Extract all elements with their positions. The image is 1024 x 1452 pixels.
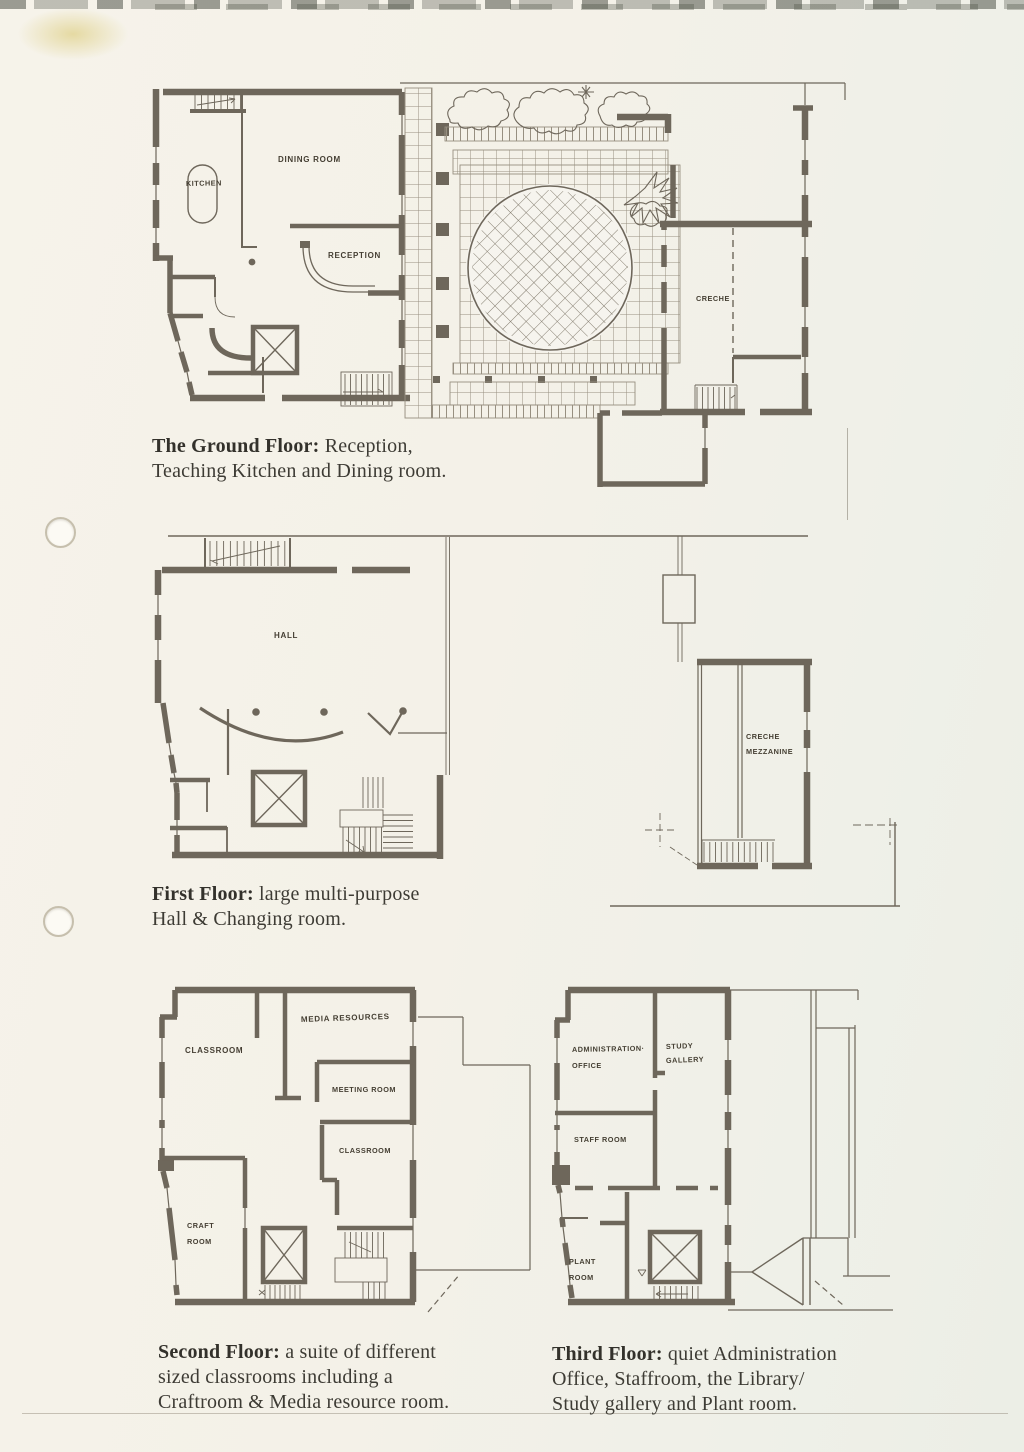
caption-text: Teaching Kitchen and Dining room.: [152, 459, 482, 484]
room-label-study-gallery: GALLERY: [666, 1055, 704, 1065]
interior-walls: [555, 990, 718, 1302]
hole-punch: [45, 517, 76, 548]
site-boundary: [400, 83, 845, 105]
tree-icon: [448, 85, 650, 134]
site-lines: [610, 536, 900, 906]
staircase-symbol: [695, 385, 737, 411]
second-floor-plan: CLASSROOM MEDIA RESOURCES MEETING ROOM C…: [155, 980, 540, 1320]
staircase-symbol: [259, 1232, 387, 1301]
room-label-plant-room: ROOM: [569, 1273, 594, 1282]
courtyard-garden: [405, 85, 813, 418]
elevator-symbol: [638, 1232, 700, 1282]
rear-extension: [600, 413, 705, 487]
room-label-creche: CRECHE: [696, 294, 730, 303]
scan-smudge: [18, 8, 128, 60]
staircase-symbol: [340, 777, 413, 855]
main-building: HALL: [158, 537, 450, 859]
room-label-hall: HALL: [274, 631, 298, 640]
room-label-media-resources: MEDIA RESOURCES: [301, 1012, 390, 1024]
room-label-administration-office: ADMINISTRATION·: [572, 1044, 645, 1054]
room-label-staff-room: STAFF ROOM: [574, 1135, 627, 1144]
caption-text: sized classrooms including a: [158, 1365, 498, 1390]
room-label-meeting-room: MEETING ROOM: [332, 1085, 396, 1094]
caption-lead: The Ground Floor:: [152, 435, 320, 457]
caption-text: Reception,: [320, 435, 413, 457]
room-label-kitchen: KITCHEN: [186, 178, 222, 188]
room-label-craft-room: CRAFT: [187, 1221, 214, 1230]
kitchen-worktable: [188, 165, 217, 223]
third-floor-plan: ADMINISTRATION· OFFICE STUDY GALLERY STA…: [548, 980, 913, 1320]
first-floor-plan: HALL CRECHE MEZZANINE: [150, 525, 910, 915]
room-label-reception: RECEPTION: [328, 251, 381, 260]
room-label-administration-office: OFFICE: [572, 1061, 602, 1070]
room-label-creche-mezzanine: CRECHE: [746, 732, 780, 741]
roof-outline: [728, 990, 893, 1310]
room-label-creche-mezzanine: MEZZANINE: [746, 747, 793, 756]
creche-building: CRECHE: [660, 224, 812, 415]
caption-text: quiet Administration: [663, 1343, 837, 1365]
building-shell: [552, 990, 858, 1302]
room-label-classroom: CLASSROOM: [339, 1146, 391, 1155]
creche-mezzanine: CRECHE MEZZANINE: [697, 662, 812, 869]
caption-lead: Second Floor:: [158, 1341, 280, 1363]
staircase-symbol: [702, 840, 775, 863]
paving-strip: [405, 88, 432, 418]
caption-text: Study gallery and Plant room.: [552, 1392, 892, 1417]
caption-text: Craftroom & Media resource room.: [158, 1390, 498, 1415]
room-label-dining: DINING ROOM: [278, 155, 341, 164]
scan-edge-artifact: [140, 4, 1024, 10]
caption-lead: Third Floor:: [552, 1343, 663, 1365]
elevator-symbol: [263, 1228, 305, 1282]
room-label-classroom: CLASSROOM: [185, 1046, 243, 1055]
column-dot: [249, 259, 256, 266]
caption-ground-floor: The Ground Floor: Reception, Teaching Ki…: [152, 434, 482, 484]
room-label-craft-room: ROOM: [187, 1237, 212, 1246]
staircase-symbol: [190, 95, 246, 111]
caption-second-floor: Second Floor: a suite of different sized…: [158, 1340, 498, 1415]
staircase-symbol: [205, 538, 290, 568]
main-building: KITCHEN DINING ROOM RECEPTION: [153, 89, 410, 406]
caption-text: large multi-purpose: [254, 883, 420, 905]
caption-first-floor: First Floor: large multi-purpose Hall & …: [152, 882, 482, 932]
caption-text: Office, Staffroom, the Library/: [552, 1367, 892, 1392]
caption-lead: First Floor:: [152, 883, 254, 905]
room-label-plant-room: PLANT: [569, 1257, 596, 1266]
room-label-study-gallery: STUDY: [666, 1041, 694, 1051]
circular-lawn: [466, 184, 634, 352]
elevator-symbol: [253, 772, 305, 825]
hole-punch: [43, 906, 74, 937]
folding-partition: [200, 707, 447, 775]
caption-text: Hall & Changing room.: [152, 907, 482, 932]
scanned-document-page: KITCHEN DINING ROOM RECEPTION: [0, 0, 1024, 1452]
caption-text: a suite of different: [280, 1341, 436, 1363]
elevator-symbol: [253, 327, 297, 373]
reception-desk: [300, 241, 375, 292]
roof-outline: [413, 1017, 530, 1312]
caption-third-floor: Third Floor: quiet Administration Office…: [552, 1342, 892, 1417]
